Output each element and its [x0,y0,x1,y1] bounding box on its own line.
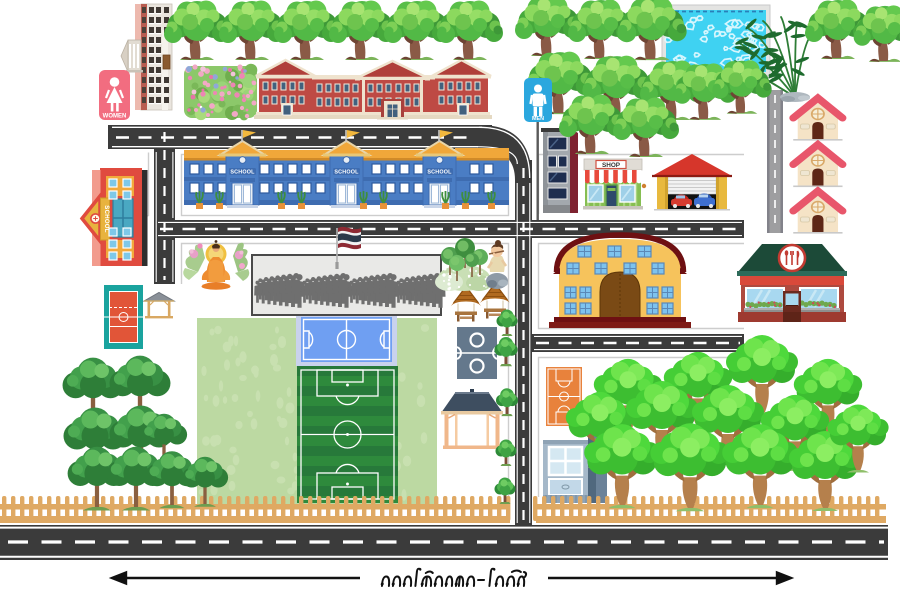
svg-text:WOMEN: WOMEN [103,114,127,120]
svg-text:SCHOOL: SCHOOL [230,170,255,176]
svg-text:SHOP: SHOP [602,162,621,169]
svg-text:SCHOOL: SCHOOL [427,170,452,176]
svg-text:SCHOOL: SCHOOL [103,205,109,233]
svg-text:MEN: MEN [532,116,544,122]
svg-text:SCHOOL: SCHOOL [334,170,359,176]
